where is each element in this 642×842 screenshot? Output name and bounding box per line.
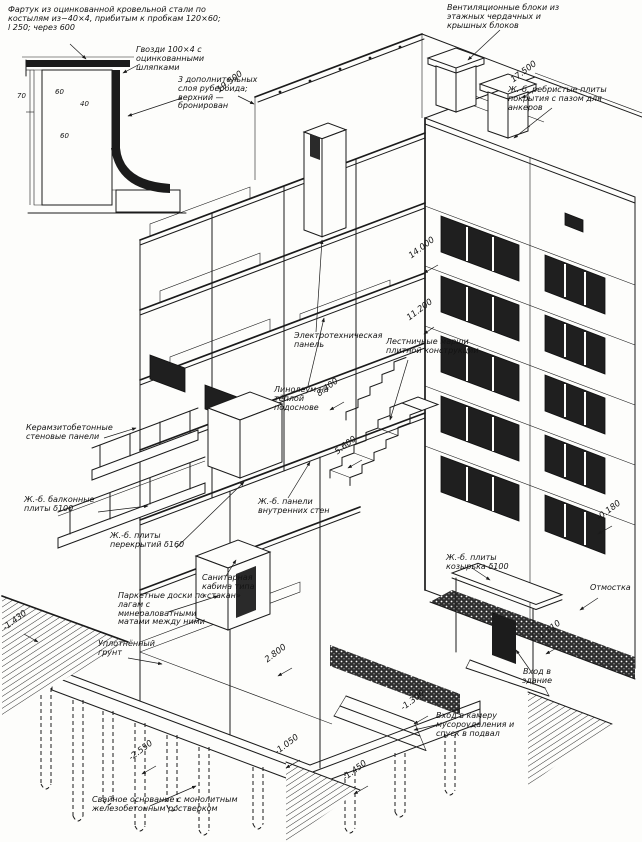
- dim-60b: 60: [60, 132, 69, 140]
- dim-40: 40: [80, 100, 89, 108]
- label-blind-area: Отмостка: [590, 584, 640, 593]
- label-refuse-entrance: Вход в камеру мусороудаления и спуск в п…: [436, 712, 528, 738]
- label-ribbed-roof-slabs: Ж.-б. ребристые плиты покрытия с пазом д…: [508, 86, 622, 112]
- label-compacted-soil: Уплотнённый грунт: [98, 640, 162, 658]
- label-balcony-slabs: Ж.-б. балконные плиты δ100: [24, 496, 120, 514]
- label-vent-blocks: Вентиляционные блоки из этажных чердачны…: [447, 4, 569, 30]
- note-nails: Гвозди 100×4 с оцинкованными шляпками: [136, 46, 218, 72]
- dim-70: 70: [17, 92, 26, 100]
- label-canopy-slabs: Ж.-б. плиты козырька δ100: [446, 554, 538, 572]
- axonometric-drawing: .s{stroke:#1b1b1b;stroke-width:1;fill:no…: [0, 0, 642, 842]
- label-electro-panel: Электротехническая панель: [294, 332, 376, 350]
- label-building-entrance: Вход в здание: [508, 668, 566, 686]
- label-floor-slabs: Ж.-б. плиты перекрытий δ160: [110, 532, 210, 550]
- label-parquet-floor: Паркетные доски по лагам с минераловатны…: [118, 592, 206, 627]
- stairs: [330, 358, 438, 486]
- label-pile-foundation: Свайное основание с монолитным железобет…: [92, 796, 250, 814]
- label-inner-wall-panels: Ж.-б. панели внутренних стен: [258, 498, 332, 516]
- electro-panel: [304, 123, 346, 237]
- label-keramzit-panels: Керамзитобетонные стеновые панели: [26, 424, 120, 442]
- note-flashing-apron: Фартук из оцинкованной кровельной стали …: [8, 6, 222, 32]
- label-stair-flights: Лестничные марши плитной конструкции: [386, 338, 482, 356]
- dim-60a: 60: [55, 88, 64, 96]
- drawing-sheet: .s{stroke:#1b1b1b;stroke-width:1;fill:no…: [0, 0, 642, 842]
- label-sanitary-cabin: Санитарная кабина типа «стакан»: [202, 574, 260, 600]
